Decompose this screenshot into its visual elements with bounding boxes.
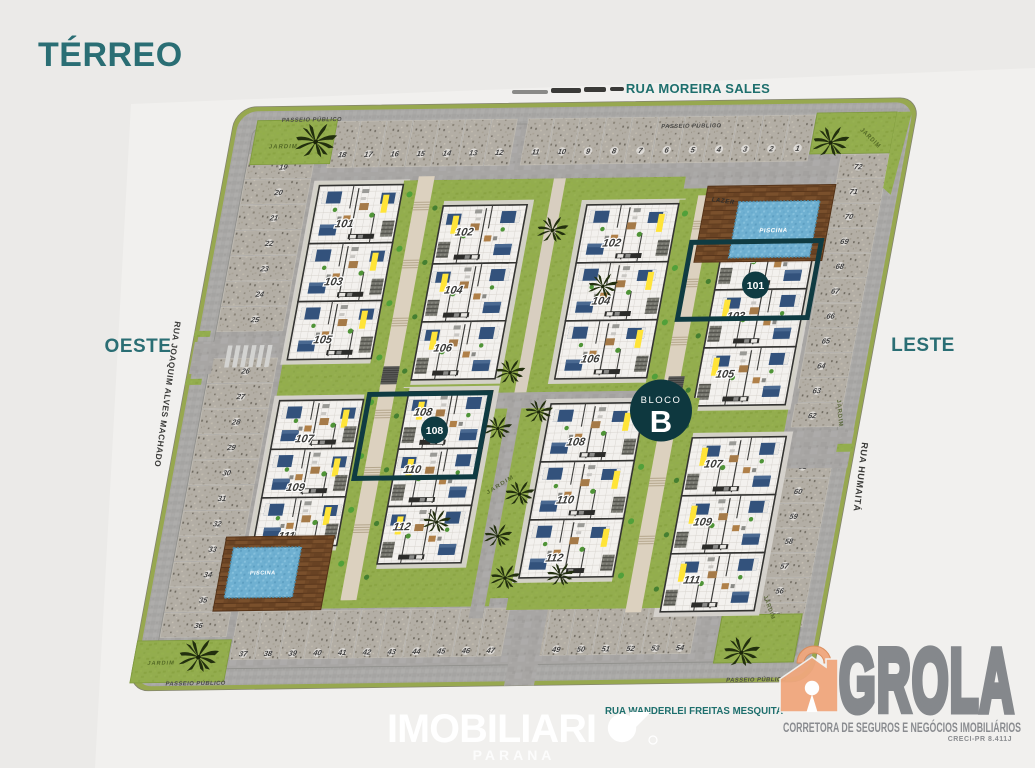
svg-text:105: 105 (715, 369, 736, 381)
svg-text:102: 102 (601, 237, 622, 249)
svg-text:106: 106 (580, 353, 601, 365)
svg-text:LESTE: LESTE (891, 335, 955, 356)
svg-text:101: 101 (747, 280, 765, 292)
svg-text:104: 104 (591, 295, 612, 307)
svg-text:108: 108 (426, 425, 444, 437)
svg-text:PASSEIO PÚBLICO: PASSEIO PÚBLICO (281, 116, 343, 124)
svg-text:IMOBILIARI: IMOBILIARI (387, 707, 596, 751)
svg-text:OESTE: OESTE (105, 336, 172, 357)
svg-text:31: 31 (217, 494, 227, 503)
svg-text:GROLA: GROLA (839, 632, 1015, 731)
svg-text:JARDIM: JARDIM (147, 660, 175, 666)
svg-text:71: 71 (849, 187, 859, 196)
svg-text:110: 110 (555, 494, 576, 506)
svg-text:105: 105 (313, 334, 334, 346)
svg-text:JARDIM: JARDIM (268, 144, 298, 150)
svg-text:51: 51 (601, 644, 611, 653)
svg-text:112: 112 (392, 521, 413, 533)
svg-text:108: 108 (413, 407, 434, 419)
svg-text:PISCINA: PISCINA (249, 570, 276, 576)
svg-text:109: 109 (692, 516, 713, 528)
svg-text:104: 104 (443, 284, 464, 296)
svg-text:106: 106 (433, 342, 454, 354)
svg-text:111: 111 (682, 574, 701, 586)
svg-text:TÉRREO: TÉRREO (38, 36, 183, 74)
svg-text:112: 112 (545, 552, 566, 564)
svg-text:41: 41 (336, 648, 347, 657)
svg-text:PASSEIO PÚBLICO: PASSEIO PÚBLICO (661, 122, 723, 130)
svg-text:107: 107 (703, 458, 724, 470)
svg-text:PARANA: PARANA (473, 747, 556, 763)
svg-text:107: 107 (294, 433, 315, 445)
svg-text:109: 109 (285, 482, 306, 494)
svg-text:CRECI-PR 8.411J: CRECI-PR 8.411J (948, 736, 1012, 743)
svg-text:110: 110 (402, 464, 423, 476)
svg-text:PASSEIO PÚBLICO: PASSEIO PÚBLICO (165, 680, 227, 688)
svg-text:B: B (650, 404, 672, 439)
svg-text:101: 101 (334, 218, 355, 230)
svg-text:102: 102 (454, 226, 475, 238)
svg-text:21: 21 (268, 213, 279, 222)
svg-text:PASSEIO PÚBLICO: PASSEIO PÚBLICO (726, 676, 788, 684)
svg-text:PISCINA: PISCINA (759, 228, 789, 234)
svg-text:CORRETORA DE SEGUROS E NEGÓCIO: CORRETORA DE SEGUROS E NEGÓCIOS IMOBILIÁ… (783, 720, 1021, 735)
svg-text:103: 103 (323, 276, 344, 288)
svg-text:108: 108 (566, 436, 587, 448)
svg-text:RUA MOREIRA SALES: RUA MOREIRA SALES (626, 81, 770, 96)
